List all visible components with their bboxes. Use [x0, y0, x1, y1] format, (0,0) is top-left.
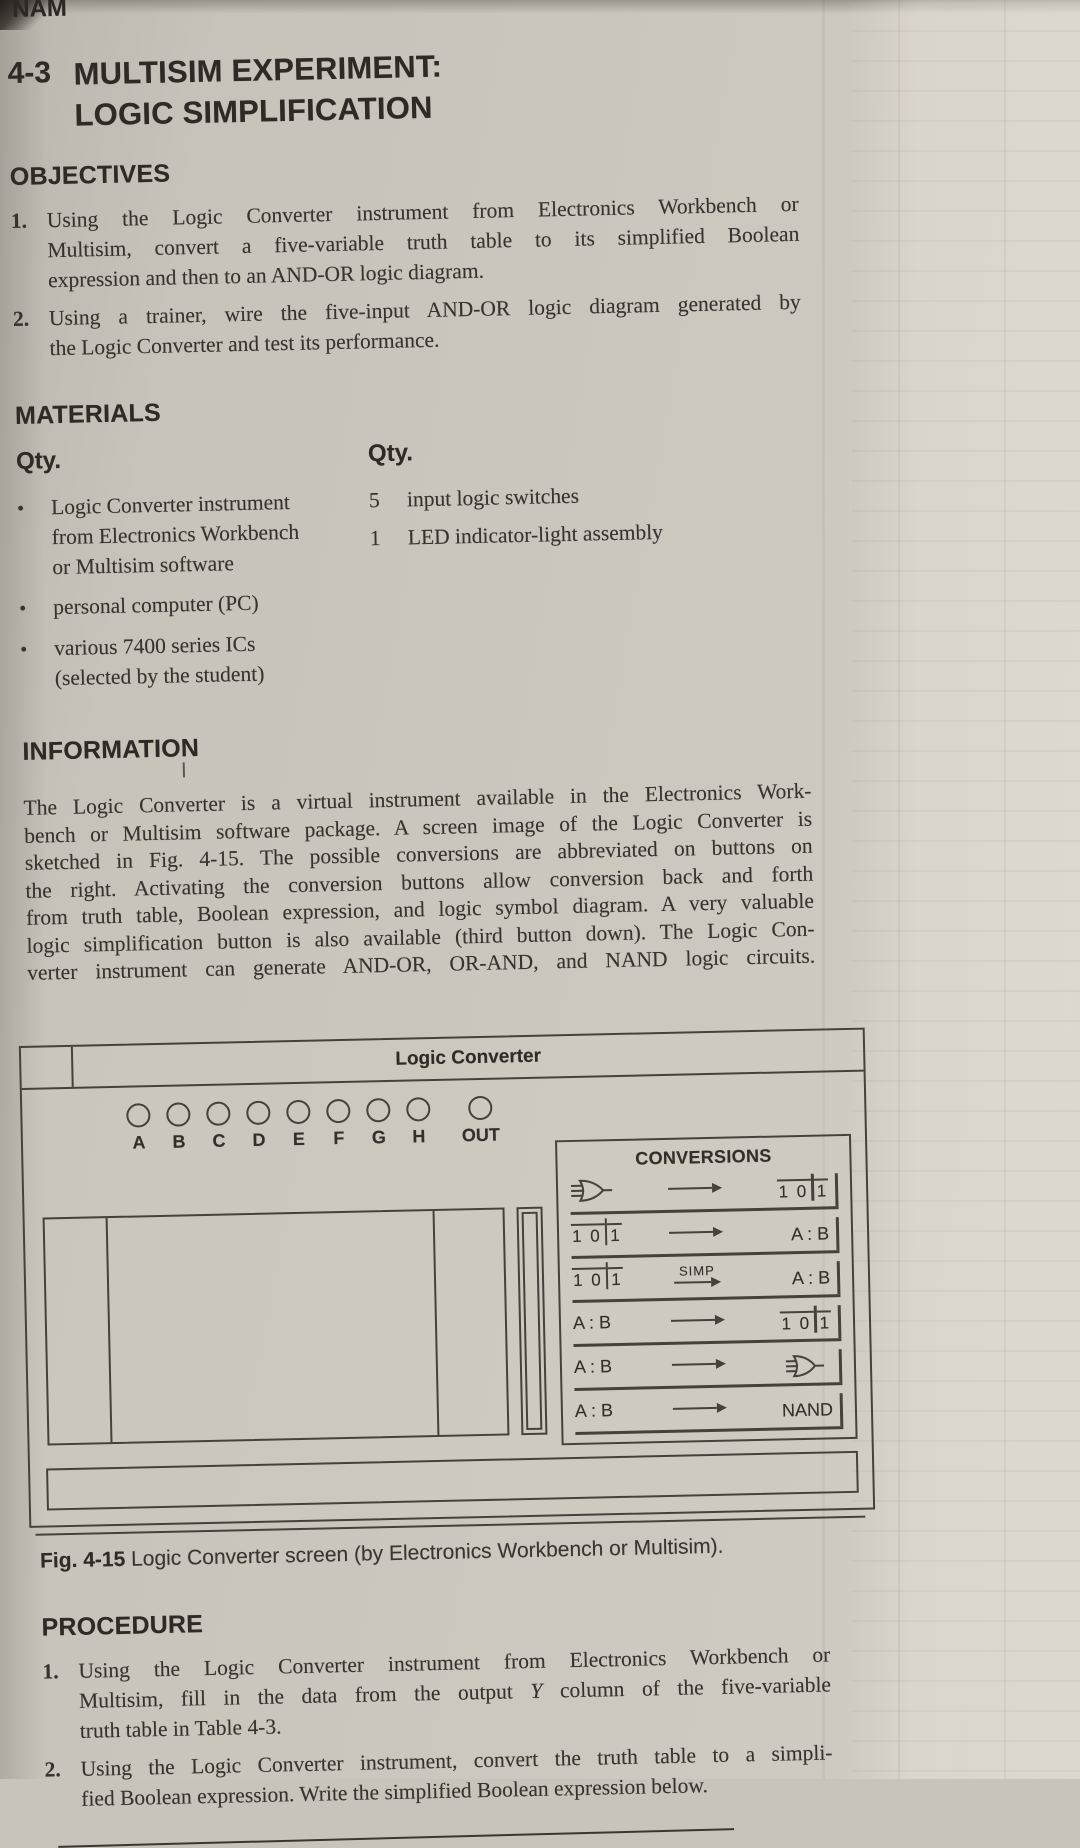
- arrow-right-icon: [668, 1226, 724, 1239]
- logic-gate-icon: [784, 1352, 833, 1379]
- terminal-circle[interactable]: [366, 1097, 391, 1122]
- truth-table-display: [43, 1207, 510, 1445]
- terminal-label: OUT: [461, 1124, 501, 1146]
- text-line: from Electronics Workbench: [51, 517, 299, 552]
- material-item: 5 input logic switches: [369, 476, 806, 516]
- truth-table-divider: [106, 1218, 113, 1442]
- objectives-list: 1. Using the Logic Converter instrument …: [11, 189, 802, 364]
- terminal-circle[interactable]: [246, 1100, 271, 1125]
- text-line: various 7400 series ICs: [54, 629, 264, 664]
- procedure-heading: PROCEDURE: [41, 1594, 911, 1642]
- bullet: •: [19, 592, 54, 624]
- terminal-label: D: [239, 1129, 279, 1151]
- scrollbar[interactable]: [516, 1206, 547, 1435]
- boolean-expression-label: A : B: [575, 1399, 659, 1422]
- item-number: 1.: [11, 205, 49, 296]
- item-number: 1.: [42, 1655, 80, 1746]
- bullet: •: [20, 633, 55, 694]
- terminal-e[interactable]: E: [278, 1099, 319, 1150]
- material-item: 1 LED indicator-light assembly: [370, 514, 807, 554]
- convert-truthtable-to-boolean-button[interactable]: 1 0 1 A : B: [571, 1209, 840, 1259]
- procedure-item-1: 1. Using the Logic Converter instrument …: [42, 1639, 832, 1746]
- answer-write-line: [58, 1828, 734, 1848]
- text-line: or Multisim software: [52, 547, 300, 582]
- material-item: • various 7400 series ICs (selected by t…: [20, 626, 373, 694]
- terminal-circle[interactable]: [166, 1102, 191, 1127]
- terminal-circle[interactable]: [326, 1098, 351, 1123]
- text-line: personal computer (PC): [53, 588, 259, 622]
- procedure-item-2: 2. Using the Logic Converter instrument,…: [44, 1737, 833, 1814]
- simplify-truthtable-to-boolean-button[interactable]: 1 0 1 SIMP A : B: [572, 1253, 841, 1303]
- qty-label-left: Qty.: [16, 439, 369, 477]
- item-number: 2.: [44, 1753, 81, 1814]
- arrow-right-icon: [667, 1182, 723, 1195]
- arrow-right-icon: [671, 1358, 727, 1371]
- materials-left-column: Qty. • Logic Converter instrument from E…: [16, 439, 374, 704]
- terminal-d[interactable]: D: [238, 1100, 279, 1151]
- terminal-h[interactable]: H: [398, 1096, 439, 1147]
- text-line: LED indicator-light assembly: [408, 517, 664, 553]
- material-qty: 1: [370, 522, 409, 553]
- page-content: NAM 4-3 MULTISIM EXPERIMENT: LOGIC SIMPL…: [0, 0, 916, 1847]
- qty-label-right: Qty.: [368, 430, 805, 470]
- terminal-out[interactable]: OUT: [460, 1095, 501, 1146]
- figure-main-area: CONVERSIONS: [23, 1137, 871, 1456]
- terminal-label: G: [359, 1126, 399, 1148]
- truth-table-icon: 1 0 1: [777, 1178, 828, 1201]
- procedure-list: 1. Using the Logic Converter instrument …: [42, 1639, 833, 1814]
- convert-boolean-to-truthtable-button[interactable]: A : B 1 0 1: [573, 1297, 842, 1347]
- boolean-expression-bar[interactable]: [46, 1450, 859, 1510]
- objective-item-1: 1. Using the Logic Converter instrument …: [11, 189, 801, 296]
- figure-caption: Fig. 4-15 Logic Converter screen (by Ele…: [40, 1532, 840, 1573]
- logic-converter-figure: Logic Converter A B C D: [19, 1027, 875, 1527]
- page-title: 4-3 MULTISIM EXPERIMENT: LOGIC SIMPLIFIC…: [7, 36, 879, 137]
- convert-circuit-to-truthtable-button[interactable]: 1 0 1: [570, 1165, 839, 1215]
- text-line: input logic switches: [407, 481, 580, 515]
- item-number: 2.: [13, 303, 50, 364]
- truth-table-icon: 1 0 1: [780, 1310, 831, 1333]
- boolean-expression-label: A : B: [738, 1261, 841, 1296]
- nand-label: NAND: [741, 1393, 844, 1428]
- terminal-label: B: [159, 1131, 199, 1153]
- terminal-circle[interactable]: [286, 1099, 311, 1124]
- materials-right-column: Qty. 5 input logic switches 1 LED indica…: [368, 430, 810, 696]
- terminal-g[interactable]: G: [358, 1097, 399, 1148]
- terminal-label: H: [399, 1125, 439, 1147]
- scan-artifact-mark: [183, 762, 185, 777]
- arrow-right-icon: [673, 1277, 721, 1289]
- bullet: •: [17, 492, 53, 583]
- section-number: 4-3: [7, 54, 75, 137]
- terminal-label: A: [119, 1131, 159, 1153]
- information-paragraph: The Logic Converter is a virtual instrum…: [23, 778, 815, 988]
- figure-caption-label: Fig. 4-15: [40, 1547, 126, 1572]
- objectives-heading: OBJECTIVES: [10, 144, 880, 192]
- truth-table-divider: [433, 1210, 440, 1434]
- objective-item-2: 2. Using a trainer, wire the five-input …: [13, 287, 802, 364]
- scrollbar-thumb[interactable]: [522, 1211, 543, 1429]
- material-item: • personal computer (PC): [19, 585, 372, 624]
- terminal-label: E: [279, 1128, 319, 1150]
- terminal-b[interactable]: B: [158, 1102, 199, 1153]
- boolean-expression-label: A : B: [737, 1217, 840, 1252]
- figure-caption-text: Logic Converter screen (by Electronics W…: [131, 1534, 724, 1570]
- arrow-right-icon: [672, 1402, 728, 1415]
- terminal-label: C: [199, 1130, 239, 1152]
- simp-label: SIMP: [679, 1264, 715, 1278]
- conversions-panel: CONVERSIONS: [555, 1133, 858, 1444]
- arrow-right-icon: [670, 1314, 726, 1327]
- scanned-page: NAM 4-3 MULTISIM EXPERIMENT: LOGIC SIMPL…: [0, 0, 1080, 1779]
- material-item: • Logic Converter instrument from Electr…: [17, 485, 371, 583]
- convert-boolean-to-circuit-button[interactable]: A : B: [574, 1341, 843, 1391]
- logic-gate-icon: [570, 1176, 621, 1205]
- truth-table-icon: 1 0 1: [572, 1267, 623, 1290]
- terminal-a[interactable]: A: [118, 1102, 159, 1153]
- boolean-expression-label: A : B: [573, 1311, 657, 1334]
- truth-table-icon: 1 0 1: [571, 1223, 622, 1246]
- materials-columns: Qty. • Logic Converter instrument from E…: [16, 430, 809, 704]
- terminal-f[interactable]: F: [318, 1098, 359, 1149]
- terminal-circle[interactable]: [206, 1101, 231, 1126]
- title-line2: LOGIC SIMPLIFICATION: [74, 87, 443, 136]
- materials-heading: MATERIALS: [15, 383, 885, 431]
- terminal-c[interactable]: C: [198, 1101, 239, 1152]
- terminal-label: F: [319, 1127, 359, 1149]
- terminal-circle[interactable]: [468, 1095, 493, 1120]
- terminal-circle[interactable]: [126, 1103, 151, 1128]
- terminal-circle[interactable]: [406, 1097, 431, 1122]
- name-header-partial: NAM: [12, 0, 67, 24]
- material-qty: 5: [369, 484, 408, 515]
- text-line: (selected by the student): [54, 659, 264, 694]
- window-system-menu-box[interactable]: [21, 1046, 74, 1087]
- variable-y: Y: [530, 1678, 542, 1702]
- convert-boolean-to-nand-button[interactable]: A : B NAND: [574, 1385, 843, 1435]
- information-heading: INFORMATION: [22, 719, 892, 767]
- boolean-expression-label: A : B: [574, 1355, 658, 1378]
